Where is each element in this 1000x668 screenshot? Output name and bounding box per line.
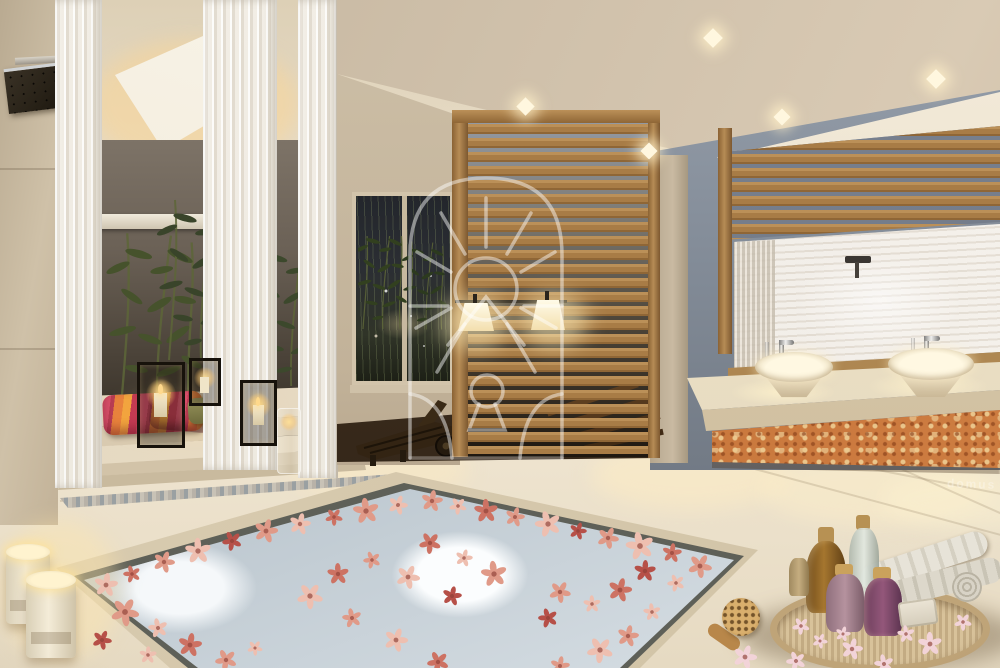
- watermark-logo: [0, 0, 1000, 668]
- watermark-brand-text: domus: [947, 476, 997, 492]
- spa-bathroom-render: domus: [0, 0, 1000, 668]
